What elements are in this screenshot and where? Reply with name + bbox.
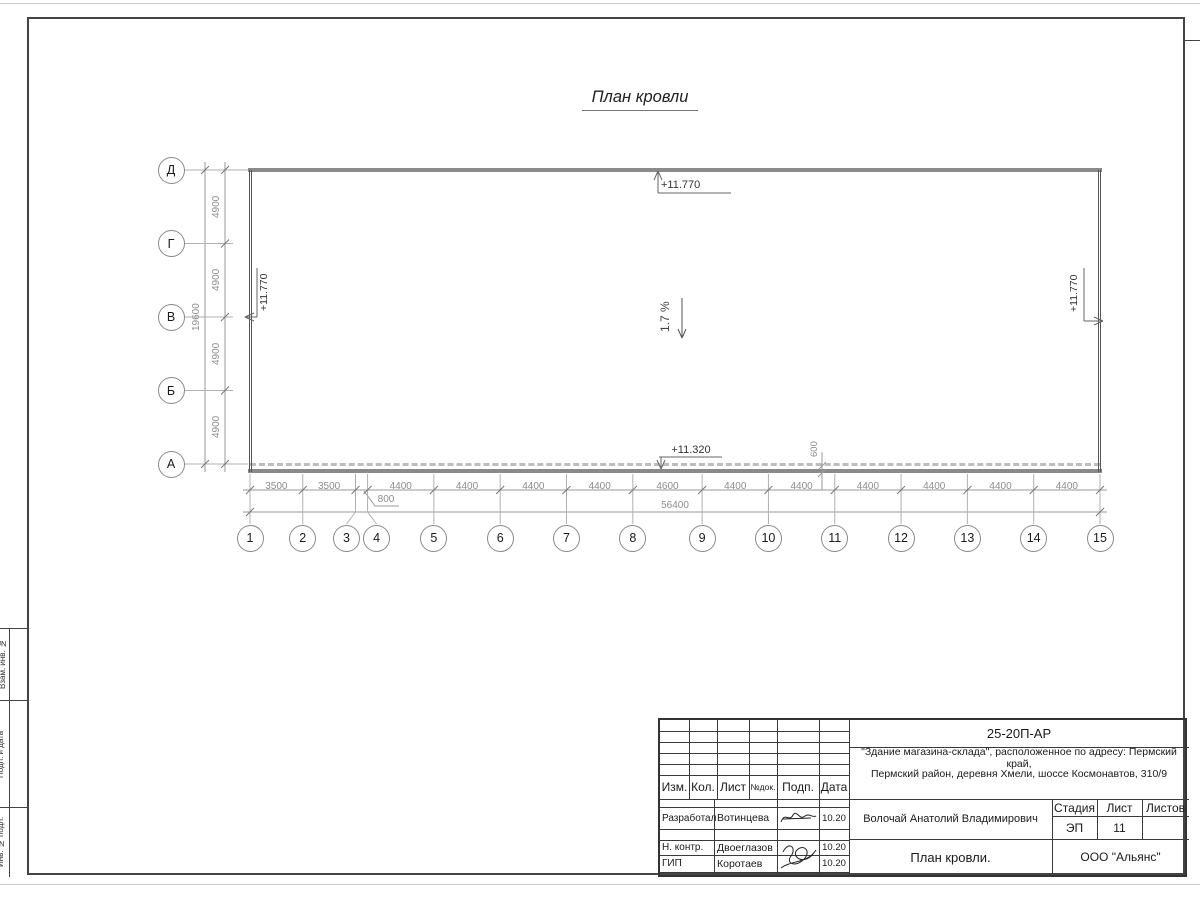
dim-col-segment: 4400 [511, 481, 555, 492]
col-axis-bubble: 3 [333, 525, 360, 552]
row-axis-bubble: А [158, 451, 185, 478]
col-axis-bubble: 12 [888, 525, 915, 552]
dim-col-segment: 4400 [979, 481, 1023, 492]
tb-header-izm: Изм. [660, 775, 689, 799]
dim-tick [764, 486, 772, 494]
dim-tick [1030, 486, 1038, 494]
dim-tick [963, 486, 971, 494]
dim-col-segment: 4400 [379, 481, 423, 492]
row-axis-bubble: Г [158, 230, 185, 257]
col-axis-bubble: 15 [1087, 525, 1114, 552]
dim-tick [496, 486, 504, 494]
dim-col-segment: 4400 [1045, 481, 1089, 492]
dim-tick [1096, 486, 1104, 494]
tb-chief-name: Волочай Анатолий Владимирович [849, 799, 1052, 839]
dim-tick [246, 508, 254, 516]
dim-tick [201, 460, 209, 468]
row-axis-bubble: Д [158, 157, 185, 184]
dim-tick [629, 486, 637, 494]
col-axis-bubble: 9 [689, 525, 716, 552]
project-description-line2: Пермский район, деревня Хмели, шоссе Кос… [851, 765, 1187, 783]
dim-tick [430, 486, 438, 494]
dim-tick [246, 486, 254, 494]
col-axis-bubble: 2 [289, 525, 316, 552]
tb-line [660, 764, 849, 765]
col-axis-bubble: 6 [487, 525, 514, 552]
dim-tick [201, 166, 209, 174]
dim-row-segment: 4900 [211, 244, 225, 316]
tb-sheets-value [1142, 816, 1189, 839]
dim-col-segment: 4400 [578, 481, 622, 492]
col-axis-bubble: 5 [420, 525, 447, 552]
dim-tick [299, 486, 307, 494]
tb-date-ncontr: 10.20 [819, 840, 849, 855]
col-axis-bubble: 11 [821, 525, 848, 552]
tb-role-developer: Разработал [662, 807, 714, 829]
title-block: 25-20П-АР "Здание магазина-склада", расп… [658, 718, 1187, 877]
tb-header-kol: Кол. [689, 775, 717, 799]
col-axis-bubble: 13 [954, 525, 981, 552]
dim-tick [831, 486, 839, 494]
tb-header-data: Дата [819, 775, 849, 799]
tb-name-developer: Вотинцева [717, 807, 777, 829]
dim-col-segment: 4400 [780, 481, 824, 492]
tb-role-ncontr: Н. контр. [662, 840, 714, 855]
row-axis-bubble: В [158, 304, 185, 331]
tb-header-list: Лист [717, 775, 749, 799]
dim-col-segment: 4400 [445, 481, 489, 492]
drawing-sheet: Взам. инв. № Подп. и дата Инв. № подл. П… [0, 0, 1200, 900]
tb-line [660, 829, 849, 830]
signature-developer [777, 807, 819, 829]
tb-line [660, 753, 849, 754]
tb-sheet-value: 11 [1097, 816, 1142, 839]
dim-tick [562, 486, 570, 494]
tb-organization: ООО "Альянс" [1052, 839, 1189, 875]
tb-header-podp: Подп. [777, 775, 819, 799]
dim-tick [1096, 508, 1104, 516]
tb-line [714, 799, 715, 875]
col-axis-bubble: 7 [553, 525, 580, 552]
dim-row-segment: 4900 [211, 171, 225, 243]
tb-role-gip: ГИП [662, 855, 714, 872]
tb-stage-label: Стадия [1052, 799, 1097, 816]
signature-gip [777, 838, 819, 874]
tb-stage-value: ЭП [1052, 816, 1097, 839]
tb-line [660, 731, 849, 732]
dim-tick [351, 486, 359, 494]
bubble-leader [346, 512, 355, 524]
tb-line [660, 872, 849, 873]
row-axis-bubble: Б [158, 377, 185, 404]
dim-row-segment: 4900 [211, 318, 225, 390]
tb-name-gip: Коротаев [717, 855, 777, 872]
dim-col-segment: 4400 [713, 481, 757, 492]
dim-col-segment: 4400 [846, 481, 890, 492]
tb-date-developer: 10.20 [819, 807, 849, 829]
dim-col-segment: 3500 [307, 481, 351, 492]
tb-sheet-label: Лист [1097, 799, 1142, 816]
dim-col-segment: 3500 [254, 481, 298, 492]
tb-drawing-title: План кровли. [849, 839, 1052, 875]
dim-tick [897, 486, 905, 494]
col-axis-bubble: 1 [237, 525, 264, 552]
tb-sheets-label: Листов [1142, 799, 1189, 816]
tb-date-gip: 10.20 [819, 855, 849, 872]
bubble-leader [368, 512, 377, 524]
col-axis-bubble: 4 [363, 525, 390, 552]
doc-code: 25-20П-АР [849, 720, 1189, 747]
dim-row-segment: 4900 [211, 391, 225, 463]
dim-tick [698, 486, 706, 494]
dim-col-segment: 4600 [645, 481, 689, 492]
dim-col-segment: 4400 [912, 481, 956, 492]
col-axis-bubble: 14 [1020, 525, 1047, 552]
tb-line [660, 742, 849, 743]
col-axis-bubble: 10 [755, 525, 782, 552]
tb-name-ncontr: Двоеглазов [717, 840, 777, 855]
dim-tick [364, 486, 372, 494]
tb-header-ndok: №док. [749, 775, 777, 799]
col-axis-bubble: 8 [619, 525, 646, 552]
